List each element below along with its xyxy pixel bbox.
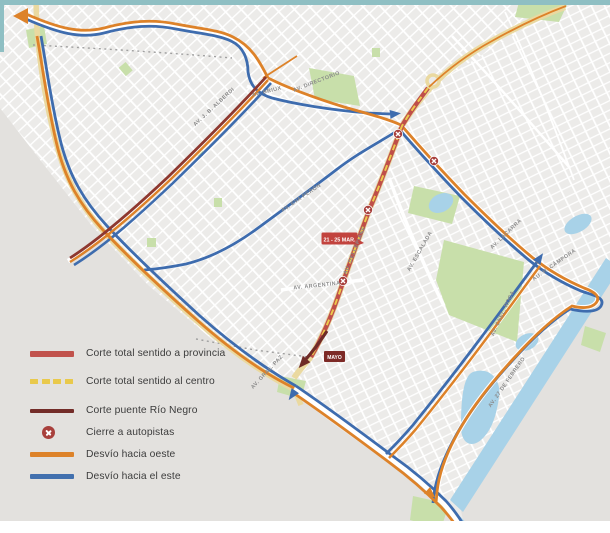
highway-roundabout: [427, 75, 439, 87]
badge-mayo-text: MAYO: [327, 355, 342, 361]
traffic-closure-infographic: 21 - 25 MAR. MAYO AV. J. B. ALBERDI AV. …: [0, 0, 610, 533]
closure-marker-icon: [393, 129, 402, 138]
closure-marker-icon: [363, 205, 372, 214]
map-canvas: 21 - 25 MAR. MAYO AV. J. B. ALBERDI AV. …: [0, 0, 610, 533]
closure-marker-icon: [429, 156, 438, 165]
date-badge-mayo: MAYO: [324, 351, 345, 362]
map-border-top: [0, 0, 610, 5]
bottom-margin: [0, 521, 610, 533]
badge-march-text: 21 - 25 MAR.: [323, 237, 356, 243]
map-border-left: [0, 0, 4, 52]
